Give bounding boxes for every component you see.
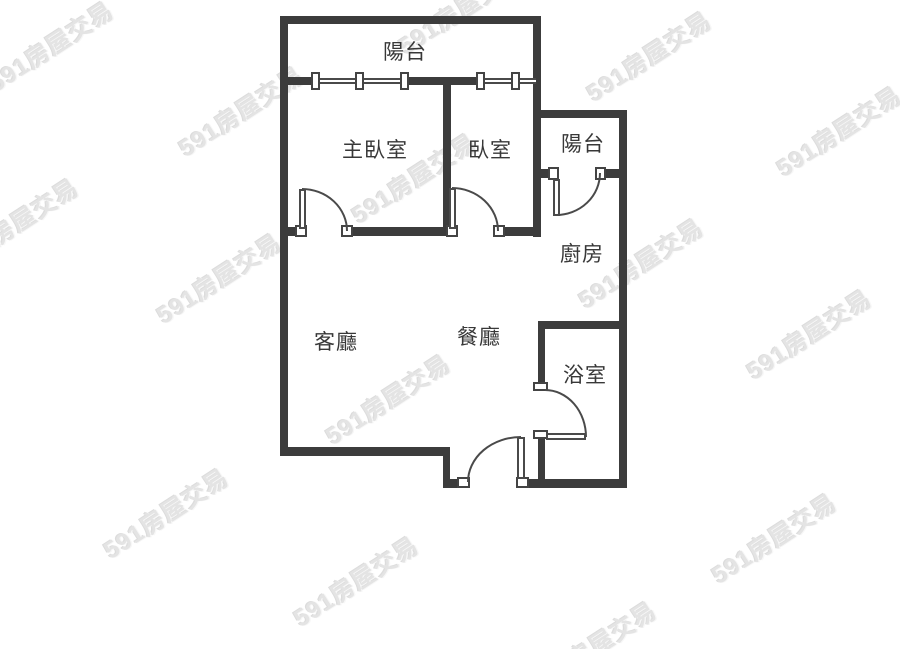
door-arc-bathroom bbox=[545, 390, 586, 437]
room-label-living-room: 客廳 bbox=[314, 326, 358, 356]
door-arc-balcony bbox=[556, 173, 600, 215]
room-label-kitchen: 廚房 bbox=[560, 238, 604, 268]
room-label-bathroom: 浴室 bbox=[563, 359, 607, 389]
door-arcs bbox=[0, 0, 900, 649]
door-arc-entry bbox=[468, 437, 521, 482]
door-arc-bedroom bbox=[452, 188, 498, 231]
room-label-dining-room: 餐廳 bbox=[457, 321, 501, 351]
room-label-bedroom: 臥室 bbox=[468, 134, 512, 164]
room-label-balcony-top: 陽台 bbox=[383, 36, 427, 66]
floorplan-image: 591房屋交易591房屋交易591房屋交易591房屋交易591房屋交易591房屋… bbox=[0, 0, 900, 649]
room-label-balcony-right: 陽台 bbox=[561, 128, 605, 158]
room-label-master-bedroom: 主臥室 bbox=[342, 134, 408, 164]
floorplan: 陽台 主臥室 臥室 陽台 廚房 客廳 餐廳 浴室 bbox=[0, 0, 900, 649]
door-arc-master-bedroom bbox=[302, 189, 347, 231]
